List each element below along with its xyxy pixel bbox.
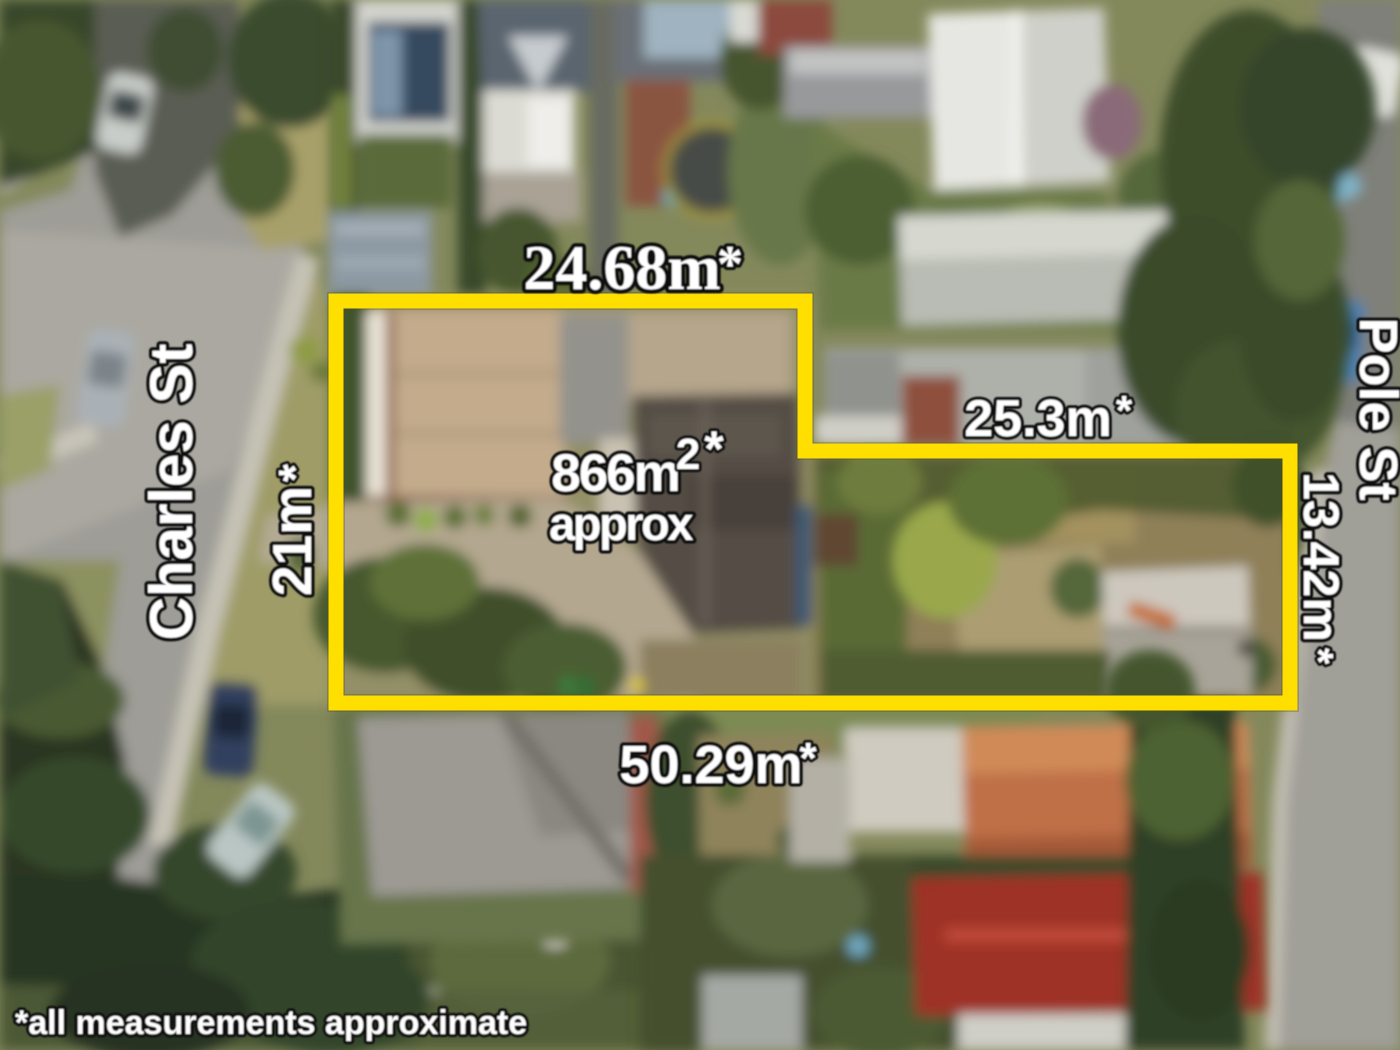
svg-text:866m: 866m xyxy=(551,444,679,503)
svg-text:*: * xyxy=(717,236,743,293)
svg-text:50.29m: 50.29m xyxy=(619,735,802,795)
svg-text:*: * xyxy=(704,421,724,477)
svg-text:Charles St: Charles St xyxy=(138,344,205,641)
svg-text:Pole St: Pole St xyxy=(1348,317,1400,500)
svg-text:21m: 21m xyxy=(261,486,323,596)
svg-text:approx: approx xyxy=(549,497,693,550)
svg-text:*: * xyxy=(1295,648,1342,665)
svg-text:13.42m: 13.42m xyxy=(1293,472,1349,642)
svg-text:25.3m: 25.3m xyxy=(964,390,1111,448)
svg-text:2: 2 xyxy=(676,430,700,479)
svg-text:24.68m: 24.68m xyxy=(523,232,720,303)
svg-text:*: * xyxy=(269,464,321,482)
svg-text:*: * xyxy=(1116,387,1133,434)
svg-text:*all measurements approximate: *all measurements approximate xyxy=(15,1004,527,1042)
svg-text:*: * xyxy=(799,734,817,783)
